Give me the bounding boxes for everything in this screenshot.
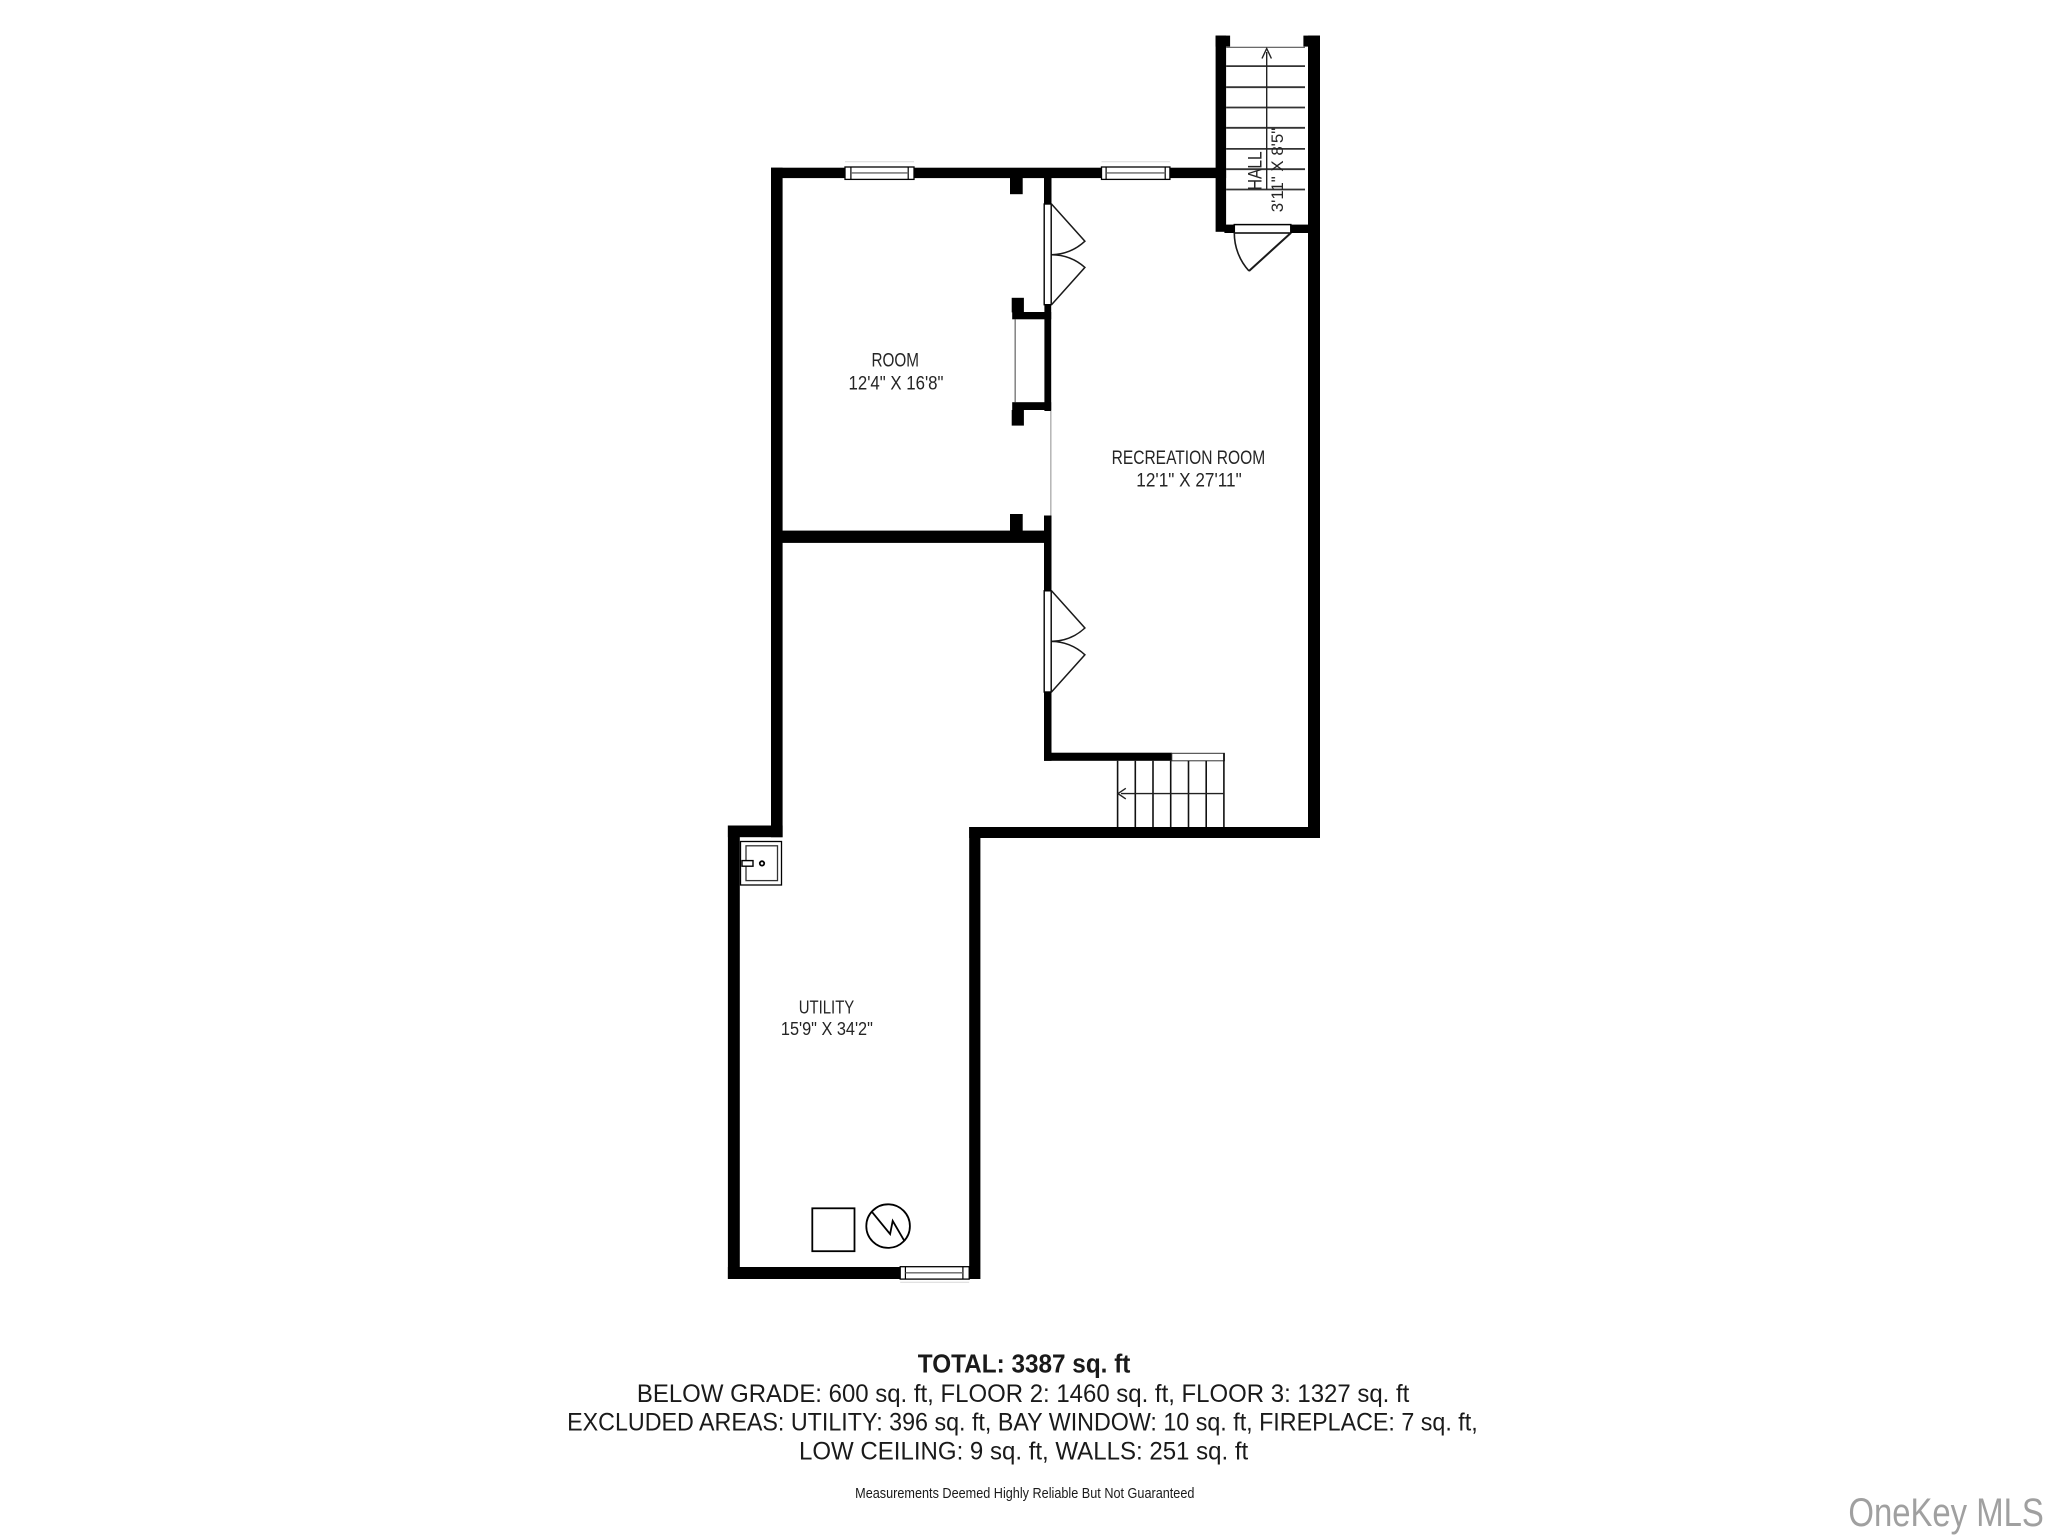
svg-text:Measurements Deemed Highly Rel: Measurements Deemed Highly Reliable But … <box>855 1485 1194 1502</box>
svg-text:ROOM: ROOM <box>871 351 919 372</box>
svg-text:15'9" X 34'2": 15'9" X 34'2" <box>781 1019 873 1039</box>
svg-text:HALL: HALL <box>1245 151 1266 190</box>
svg-text:12'1" X 27'11": 12'1" X 27'11" <box>1136 470 1241 491</box>
svg-text:3'11" X 8'5": 3'11" X 8'5" <box>1268 128 1287 212</box>
svg-text:RECREATION ROOM: RECREATION ROOM <box>1112 448 1266 469</box>
svg-text:BELOW GRADE: 600 sq. ft, FLOOR: BELOW GRADE: 600 sq. ft, FLOOR 2: 1460 s… <box>637 1380 1409 1408</box>
svg-text:TOTAL: 3387 sq. ft: TOTAL: 3387 sq. ft <box>918 1351 1131 1379</box>
svg-text:UTILITY: UTILITY <box>799 998 855 1018</box>
svg-text:12'4" X 16'8": 12'4" X 16'8" <box>849 373 944 394</box>
svg-text:LOW CEILING: 9 sq. ft, WALLS:: LOW CEILING: 9 sq. ft, WALLS: 251 sq. ft <box>799 1438 1248 1466</box>
svg-text:OneKey MLS: OneKey MLS <box>1848 1491 2043 1535</box>
svg-text:EXCLUDED AREAS: UTILITY: 396 s: EXCLUDED AREAS: UTILITY: 396 sq. ft, BAY… <box>567 1408 1478 1436</box>
